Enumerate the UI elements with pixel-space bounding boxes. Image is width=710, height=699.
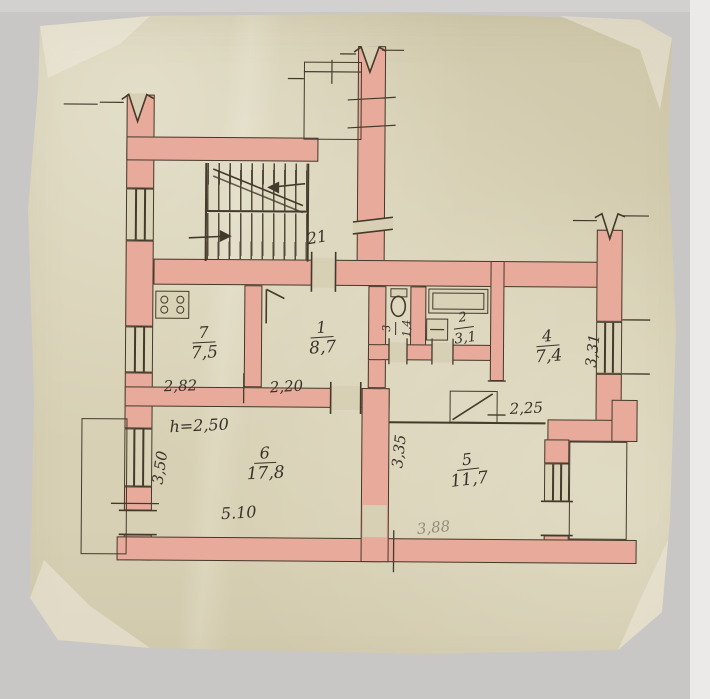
wall-room1-wc-divider [368, 286, 387, 388]
room-area: 8,7 [309, 337, 337, 359]
wall-right-corner-v [611, 400, 637, 442]
room-number: 2 [452, 308, 475, 330]
dim-ceiling-height: h=2,50 [169, 415, 229, 437]
wall-stairwell-top [126, 136, 318, 161]
room-area: 17,8 [246, 463, 285, 485]
stairs-upper-flight [207, 163, 307, 211]
room-number: 6 [253, 444, 276, 464]
room-label-1: 1 8,7 [307, 317, 337, 359]
room-area: 7,5 [191, 342, 219, 363]
entrance-door-opening [311, 258, 335, 288]
dim-room4-depth: 3,31 [582, 333, 604, 368]
window-stairwell [126, 188, 154, 240]
room-label-bathroom: 2 3,1 [451, 308, 478, 350]
loggia-outline [569, 441, 628, 539]
corridor-door-opening [331, 386, 361, 410]
floor-plan: 21 7 7,5 1 8,7 2 3,1 3 1,4 4 7,4 6 17,8 … [0, 0, 710, 699]
room-label-kitchen: 7 7,5 [190, 322, 219, 363]
dim-hall-width: 2,25 [509, 398, 543, 417]
room-number: 3 [378, 322, 396, 335]
wall-left-b [125, 240, 154, 326]
room-area: 1,4 [396, 320, 416, 338]
room5-door-opening [363, 505, 387, 537]
room1-door-leaf [266, 289, 284, 323]
wall-middle-horizontal [153, 259, 598, 288]
room-label-4: 4 7,4 [533, 325, 563, 367]
dim-room6-depth: 3,50 [149, 450, 172, 486]
room-number: 4 [535, 327, 559, 348]
wc-door-opening [389, 342, 407, 362]
dim-kitchen-width: 2,82 [163, 376, 197, 395]
stove-icon [155, 291, 189, 319]
wall-wc-bath-divider [410, 286, 426, 346]
built-in-closet [449, 391, 497, 423]
dim-room6-width: 5.10 [220, 502, 257, 523]
dim-room5-depth: 3,35 [388, 434, 410, 469]
wall-left-d [124, 486, 152, 510]
photo-of-floor-plan: 21 7 7,5 1 8,7 2 3,1 3 1,4 4 7,4 6 17,8 … [0, 0, 710, 699]
wall-room5-right-a [544, 439, 569, 463]
toilet-icon [391, 296, 405, 316]
vent-shaft-outline [303, 62, 362, 140]
balcony-outline [81, 418, 128, 554]
room-label-wc: 3 1,4 [378, 319, 416, 337]
wall-room4-divider [490, 261, 505, 381]
room-area: 7,4 [535, 345, 564, 367]
apartment-number-label: 21 [305, 226, 328, 248]
room-number: 1 [310, 318, 333, 338]
room-area: 3,1 [453, 327, 478, 350]
wall-kitchen-room1-divider [244, 285, 263, 387]
stairs-lower-flight [207, 213, 307, 260]
window-room5 [544, 463, 569, 501]
room-number: 7 [192, 323, 215, 343]
room-area: 11,7 [449, 468, 489, 492]
wall-right-a [596, 230, 623, 322]
room-label-6: 6 17,8 [245, 443, 285, 485]
dim-room1-width: 2,20 [269, 376, 303, 396]
room-label-5: 5 11,7 [447, 448, 489, 492]
dim-room5-width: 3,88 [416, 517, 451, 538]
window-kitchen [125, 326, 153, 372]
sink-icon [426, 318, 448, 340]
toilet-tank-icon [390, 288, 407, 297]
bath-door-opening [432, 343, 453, 363]
